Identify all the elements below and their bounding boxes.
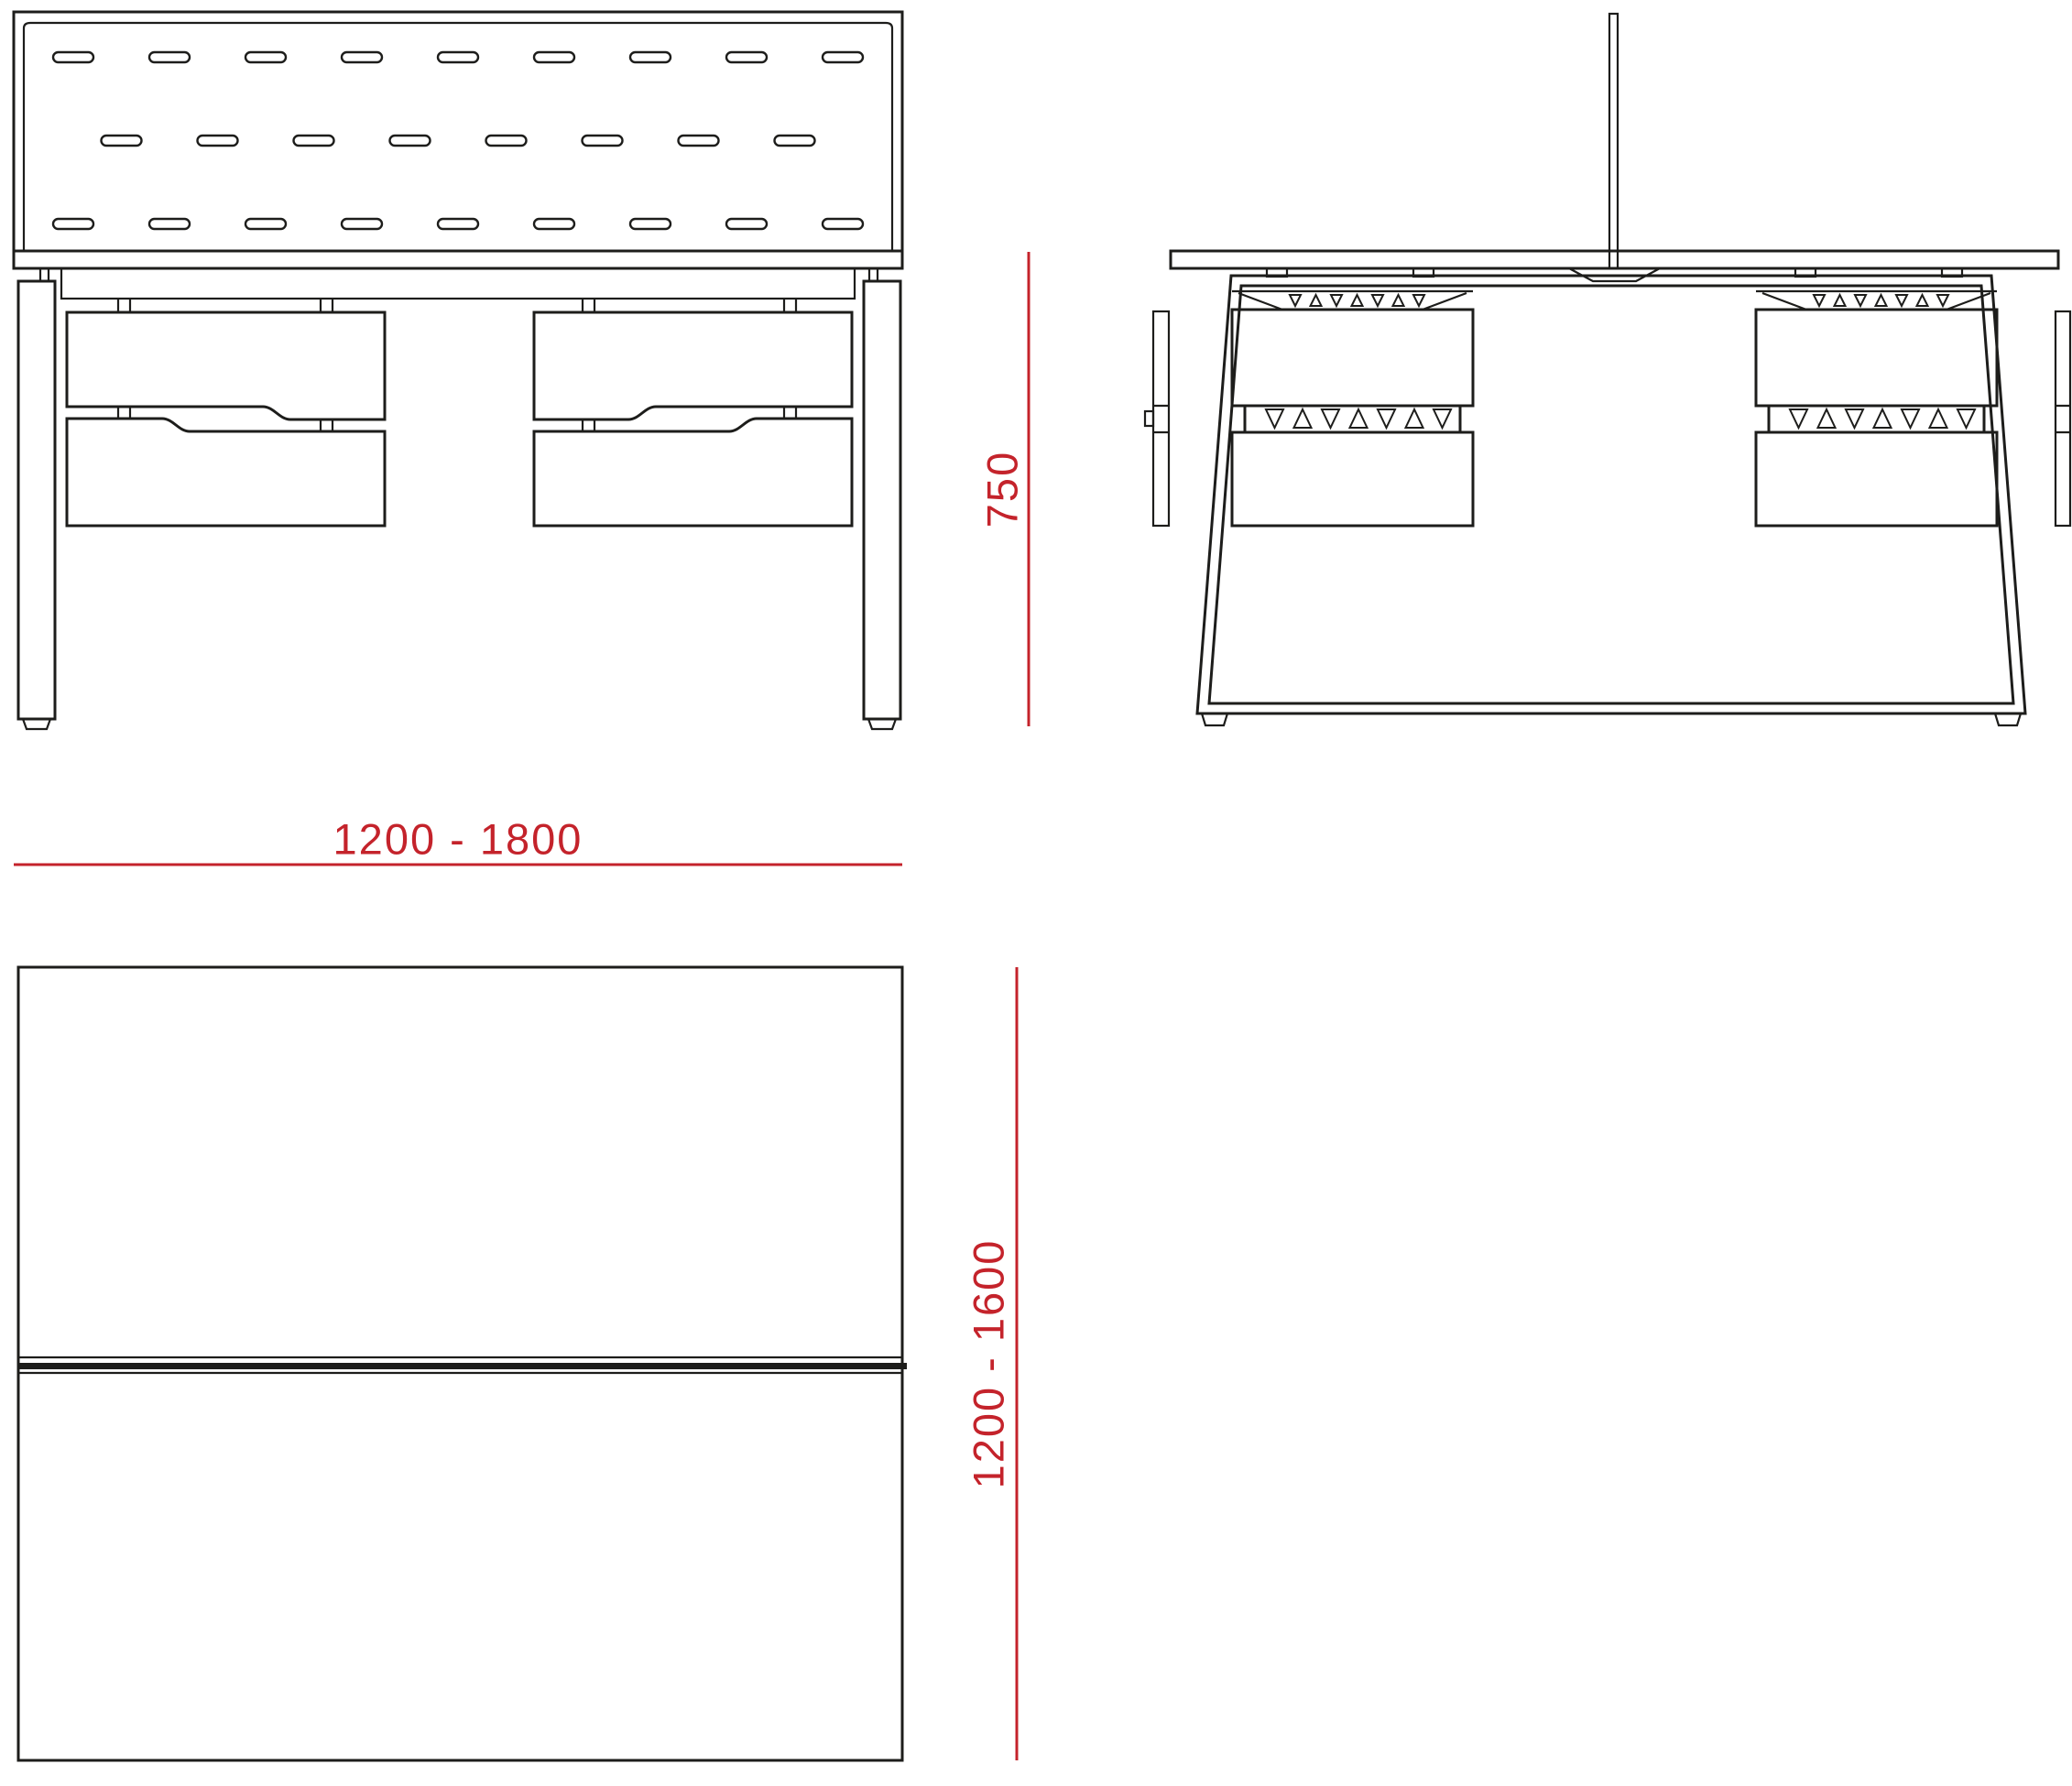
drawer-bottom-side <box>1232 432 1473 526</box>
triangle-ornament <box>1311 295 1322 306</box>
screen-slot <box>245 219 286 229</box>
triangle-ornament <box>1957 409 1975 428</box>
triangle-ornament <box>1902 409 1919 428</box>
pedestal-right-front <box>534 299 852 526</box>
drawer-bottom-side <box>1756 432 1997 526</box>
leg-foot-right <box>1995 713 2021 725</box>
triangle-ornament <box>1266 409 1283 428</box>
triangle-ornament <box>1406 409 1423 428</box>
screen-slot <box>534 219 574 229</box>
screen-slot <box>534 52 574 62</box>
pedestal-left-front <box>67 299 385 526</box>
frame-inner <box>1209 286 2013 703</box>
triangle-ornament <box>1372 295 1383 306</box>
leg-neck-left <box>40 268 49 281</box>
screen-slot <box>149 52 190 62</box>
dimension-height: 750 <box>978 252 1030 726</box>
screen-slot <box>198 136 238 146</box>
screen-outer-frame <box>14 12 902 251</box>
drawer-bottom <box>534 419 852 526</box>
screen-slot <box>53 52 93 62</box>
triangle-ornament <box>1855 295 1866 306</box>
drawer-top-side <box>1232 310 1473 406</box>
screen-slot <box>486 136 527 146</box>
desk-leg-left <box>18 281 55 719</box>
triangle-ornament <box>1896 295 1907 306</box>
triangle-ornament <box>1818 409 1836 428</box>
funnel-triangles <box>1290 295 1424 306</box>
triangle-ornament <box>1378 409 1395 428</box>
panel-strip <box>2056 311 2070 526</box>
screen-slot <box>726 219 767 229</box>
handle-triangles <box>1790 409 1975 428</box>
screen-slot <box>149 219 190 229</box>
width-dimension-label: 1200 - 1800 <box>333 815 583 864</box>
triangle-ornament <box>1294 409 1312 428</box>
screen-slots <box>53 52 863 229</box>
screen-slot <box>294 136 334 146</box>
triangle-ornament <box>1393 295 1404 306</box>
dimension-depth: 1200 - 1600 <box>965 967 1018 1760</box>
screen-panel <box>14 12 902 251</box>
screen-slot <box>775 136 815 146</box>
triangle-ornament <box>1322 409 1339 428</box>
triangle-ornament <box>1434 409 1451 428</box>
drawer-hanger-tabs <box>583 299 796 312</box>
panel-strip <box>1153 311 1169 526</box>
drawer-hanger-tabs <box>118 299 333 312</box>
triangle-ornament <box>1876 295 1887 306</box>
support-rail <box>61 268 855 299</box>
leg-neck-right <box>869 268 878 281</box>
divider-screen-plan <box>18 1363 907 1369</box>
screen-slot <box>438 52 478 62</box>
triangle-ornament <box>1835 295 1846 306</box>
screen-slot <box>342 219 382 229</box>
screen-slot <box>438 219 478 229</box>
screen-slot <box>630 52 671 62</box>
screen-slot <box>679 136 719 146</box>
screen-slot <box>390 136 431 146</box>
pedestal-left-side <box>1232 291 1473 526</box>
far-panel-right <box>2056 311 2070 526</box>
drawer-top <box>67 312 385 419</box>
plan-view: 1200 - 1600 <box>18 967 1017 1760</box>
screen-slot <box>342 52 382 62</box>
triangle-ornament <box>1874 409 1892 428</box>
leg-foot-left <box>1202 713 1227 725</box>
divider-screen-edge <box>1609 14 1618 268</box>
dimension-width: 1200 - 1800 <box>14 815 902 866</box>
triangle-ornament <box>1790 409 1807 428</box>
drawing-canvas: 750 1200 - 1800 <box>0 0 2072 1786</box>
screen-slot <box>823 52 863 62</box>
frame-outer <box>1197 276 2025 713</box>
side-elevation-view <box>1145 14 2070 725</box>
desk-leg-right <box>864 281 900 719</box>
triangle-ornament <box>1331 295 1342 306</box>
screen-slot <box>53 219 93 229</box>
panel-notch <box>1145 411 1153 426</box>
pedestal-right-side <box>1756 291 1997 526</box>
technical-drawing-sheet: 750 1200 - 1800 <box>0 0 2072 1786</box>
screen-slot <box>245 52 286 62</box>
desk-top-side <box>1171 251 2058 268</box>
triangle-ornament <box>1413 295 1424 306</box>
screen-slot <box>726 52 767 62</box>
screen-slot <box>630 219 671 229</box>
triangle-ornament <box>1814 295 1825 306</box>
height-dimension-label: 750 <box>978 451 1027 528</box>
panel-ticks <box>2056 406 2070 432</box>
panel-ticks <box>1153 406 1169 432</box>
drawer-top <box>534 312 852 419</box>
depth-dimension-label: 1200 - 1600 <box>965 1239 1013 1489</box>
desk-top-front <box>14 251 902 268</box>
screen-slot <box>583 136 623 146</box>
drawer-bottom <box>67 419 385 526</box>
leg-foot-left <box>23 719 50 729</box>
triangle-ornament <box>1846 409 1863 428</box>
far-panel-left <box>1145 311 1169 526</box>
triangle-ornament <box>1937 295 1948 306</box>
leg-foot-right <box>868 719 896 729</box>
a-frame-legs <box>1197 276 2025 725</box>
triangle-ornament <box>1917 295 1928 306</box>
triangle-ornament <box>1352 295 1363 306</box>
screen-slot <box>102 136 142 146</box>
funnel-triangles <box>1814 295 1948 306</box>
front-elevation-view: 750 1200 - 1800 <box>14 12 1029 865</box>
screen-slot <box>823 219 863 229</box>
triangle-ornament <box>1350 409 1368 428</box>
drawer-top-side <box>1756 310 1997 406</box>
triangle-ornament <box>1290 295 1301 306</box>
handle-triangles <box>1266 409 1451 428</box>
triangle-ornament <box>1930 409 1947 428</box>
screen-inner-frame <box>24 23 892 251</box>
